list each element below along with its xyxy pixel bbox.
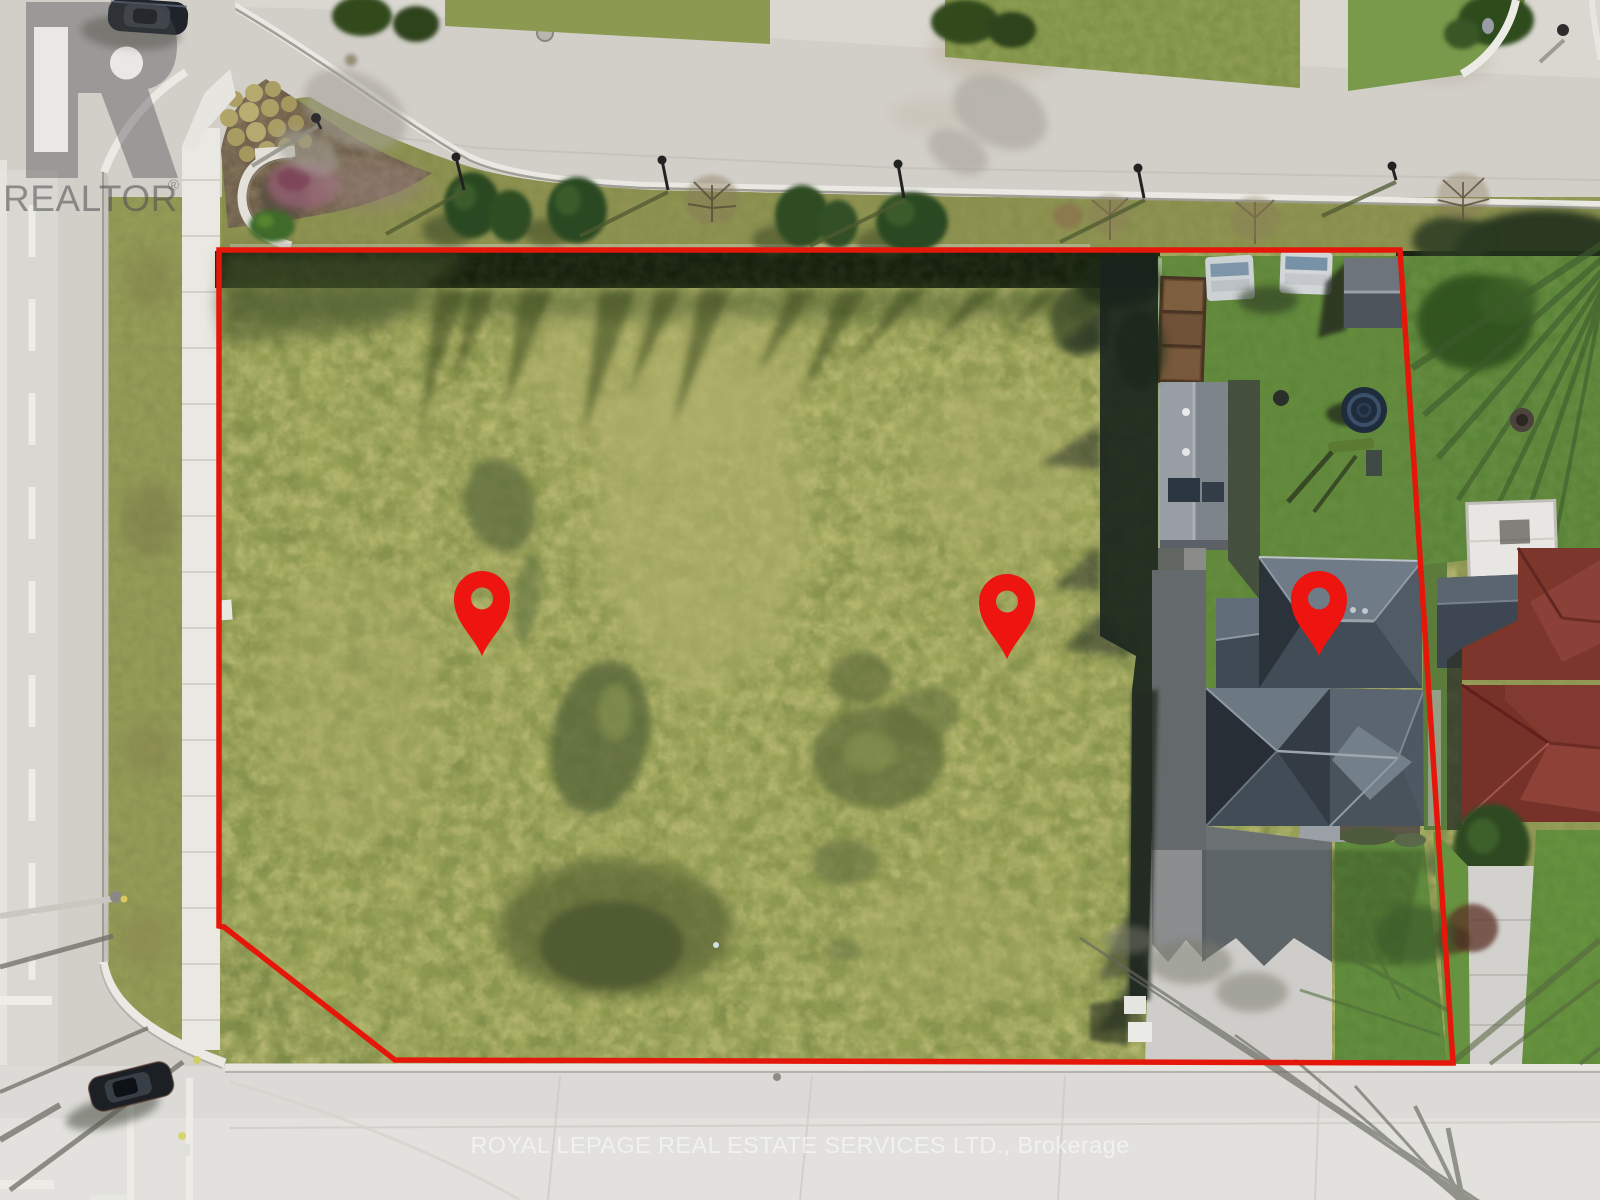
svg-text:ROYAL LEPAGE REAL ESTATE SERVI: ROYAL LEPAGE REAL ESTATE SERVICES LTD., … <box>470 1132 1129 1158</box>
svg-text:REALTOR: REALTOR <box>3 178 178 219</box>
svg-text:®: ® <box>168 177 179 194</box>
